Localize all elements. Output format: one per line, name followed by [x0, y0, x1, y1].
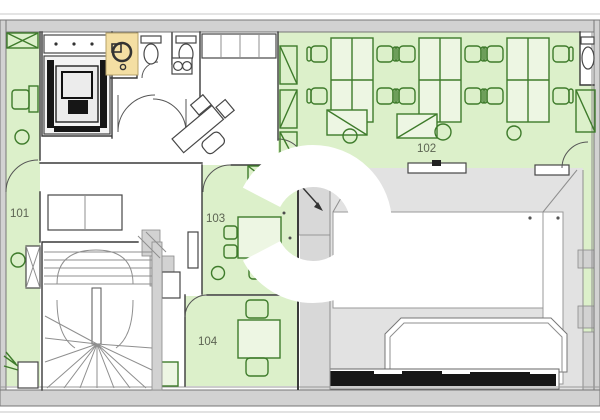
toilet-bowl [144, 44, 158, 64]
window-post [432, 160, 441, 166]
elevator-rail [47, 60, 54, 128]
stair-right-wall [152, 242, 162, 390]
skylight-octagon [385, 318, 567, 372]
wc-top-right [581, 37, 594, 69]
bottom-wall [0, 390, 600, 406]
elevator-sill [54, 126, 100, 132]
survey-dot [528, 216, 531, 219]
bottom-left-cabinet [18, 362, 38, 388]
planter-hedge [313, 369, 559, 389]
room-label-101: 101 [10, 208, 29, 220]
floor-plan-svg: 101 102 103 104 [0, 0, 600, 420]
meeting-table [238, 320, 280, 358]
elevator [44, 35, 110, 134]
accessible-wc [106, 33, 138, 75]
floor-plan: 101 102 103 104 [0, 0, 600, 420]
room-label-102: 102 [417, 143, 436, 155]
stair-newel [92, 288, 101, 344]
arrow-square [298, 182, 330, 235]
window-sill [535, 165, 569, 175]
hall-cabinet-row [202, 34, 276, 58]
room-label-104: 104 [198, 336, 218, 348]
radiator [188, 232, 198, 268]
toilet-bowl [582, 47, 594, 69]
right-wall [594, 20, 600, 390]
survey-dot [556, 216, 559, 219]
toilet-tank [581, 37, 594, 44]
elevator-motor [68, 100, 88, 114]
top-wall [0, 20, 600, 32]
white-cabinet [162, 272, 180, 298]
cabinet-row-top [44, 35, 108, 53]
toilet-tank [176, 36, 196, 43]
toilet-tank [141, 36, 161, 43]
left-wall [0, 20, 6, 390]
room-label-103: 103 [206, 213, 225, 225]
